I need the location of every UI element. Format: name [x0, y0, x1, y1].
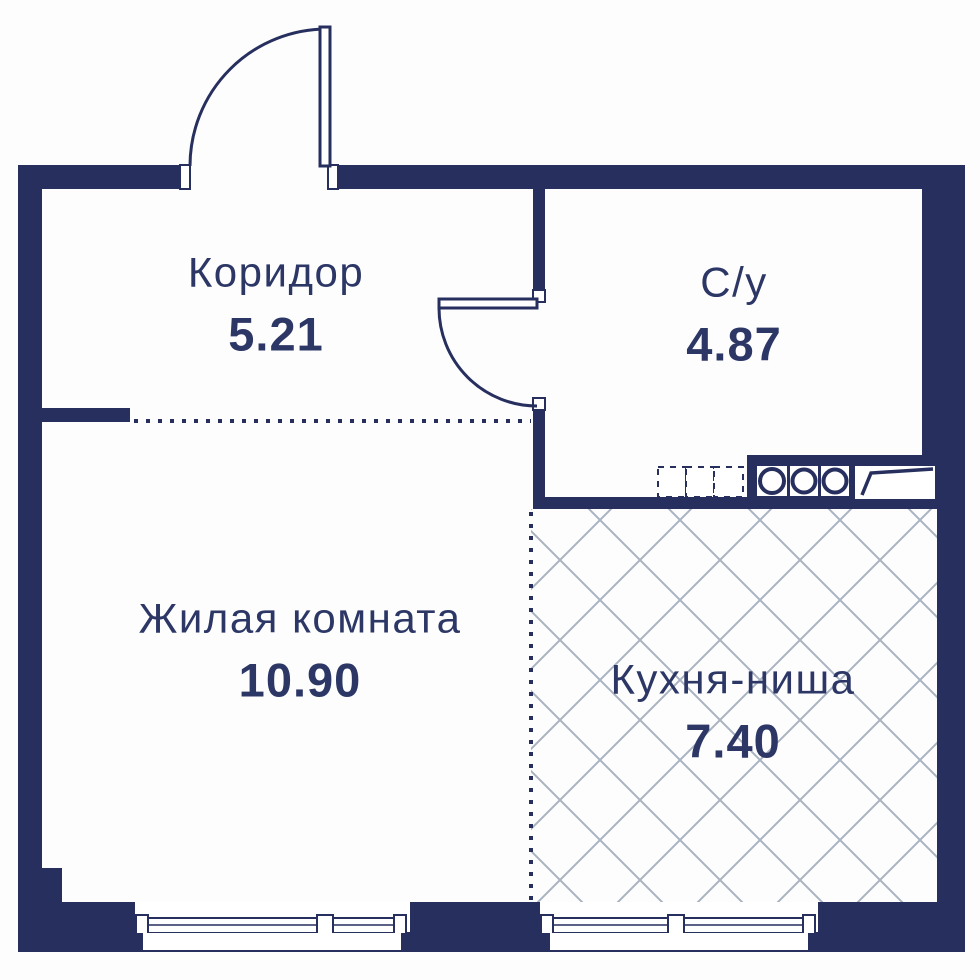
- burner-icon: [793, 470, 816, 493]
- sink-icon: [855, 466, 935, 499]
- window-kitchen: [540, 902, 818, 950]
- room-name: С/у: [686, 259, 781, 307]
- wall-left: [18, 165, 42, 952]
- room-label-kitchen-niche: Кухня-ниша 7.40: [610, 656, 855, 769]
- wall-bathroom-lower: [533, 410, 545, 497]
- room-label-corridor: Коридор 5.21: [188, 249, 364, 362]
- wall-top-left: [18, 165, 190, 189]
- window-sill: [550, 933, 808, 950]
- room-area: 7.40: [610, 714, 855, 769]
- floor-plan: Коридор 5.21 С/у 4.87 Жилая комната 10.9…: [0, 0, 980, 980]
- floor-plan-drawing: [0, 0, 980, 980]
- bathroom-door-arc: [439, 308, 537, 406]
- room-label-bathroom: С/у 4.87: [686, 259, 781, 372]
- entrance-jamb-left: [180, 165, 190, 189]
- wall-stub-corridor: [42, 408, 130, 422]
- room-name: Кухня-ниша: [610, 656, 855, 704]
- entrance-jamb-right: [328, 165, 338, 189]
- entrance-door-leaf: [320, 27, 330, 166]
- wall-bathroom-upper: [533, 189, 545, 290]
- room-area: 5.21: [188, 307, 364, 362]
- room-name: Коридор: [188, 249, 364, 297]
- window-living-room: [135, 902, 410, 950]
- room-label-living-room: Жилая комната 10.90: [139, 595, 462, 708]
- stove-icon: [757, 466, 849, 496]
- room-name: Жилая комната: [139, 595, 462, 643]
- burner-icon: [824, 470, 847, 493]
- room-area: 4.87: [686, 317, 781, 372]
- room-area: 10.90: [139, 653, 462, 708]
- appliance-dashed-outline: [658, 467, 743, 497]
- entrance-door-arc: [190, 29, 327, 166]
- wall-right-upper: [922, 165, 965, 463]
- wall-right-lower: [937, 455, 965, 952]
- burner-icon: [760, 469, 784, 493]
- wall-top-right: [328, 165, 965, 189]
- bathroom-door-leaf: [439, 299, 537, 308]
- window-sill: [143, 933, 401, 950]
- bathroom-jamb-bottom: [533, 398, 545, 410]
